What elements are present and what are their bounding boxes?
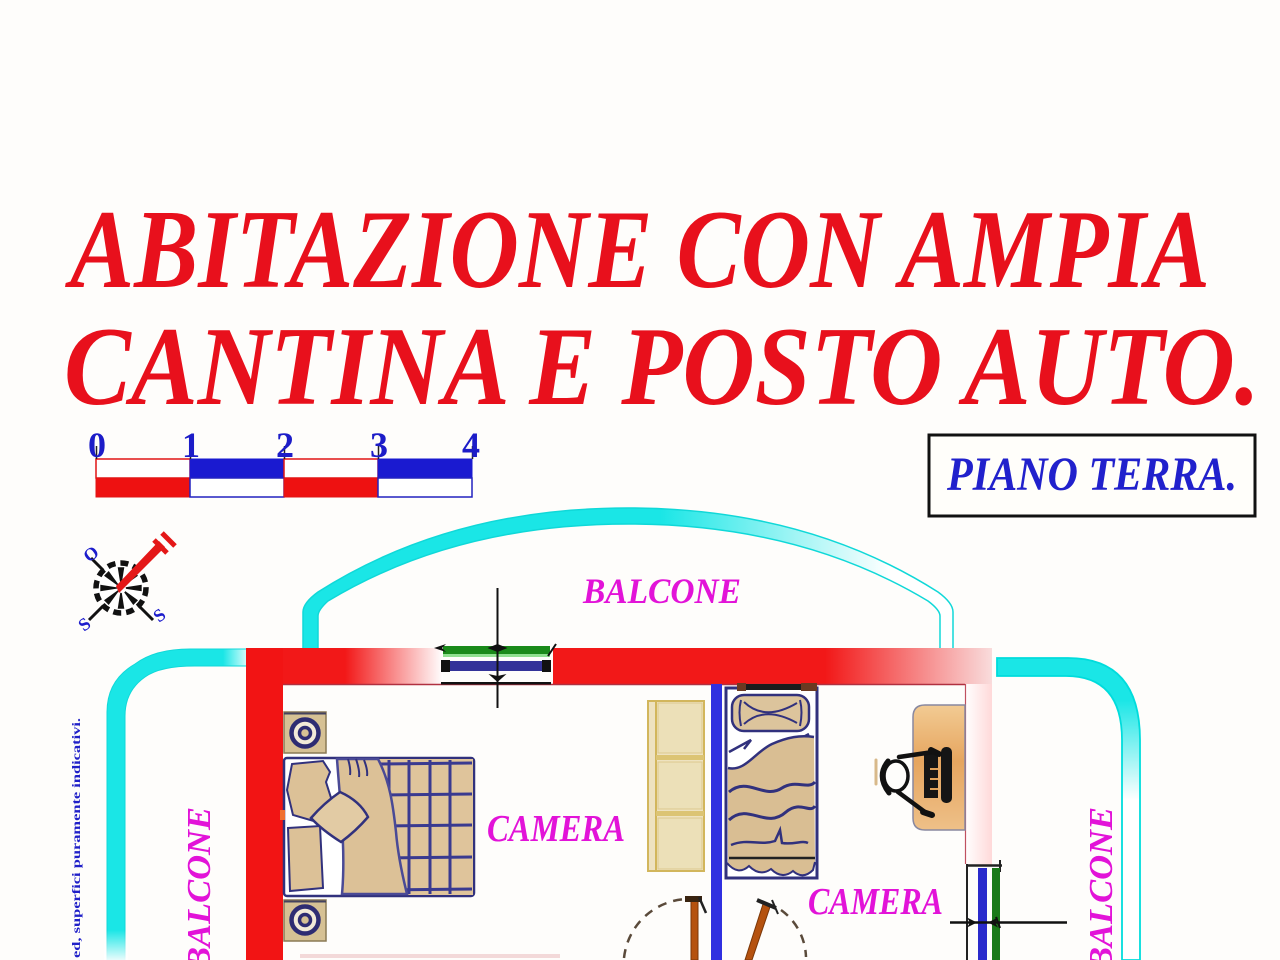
svg-text:1: 1: [182, 425, 200, 465]
svg-text:ed, superfici puramente indica: ed, superfici puramente indicativi.: [69, 718, 83, 958]
svg-text:2: 2: [276, 425, 294, 465]
svg-text:4: 4: [462, 425, 480, 465]
svg-text:ABITAZIONE CON AMPIA: ABITAZIONE CON AMPIA: [65, 188, 1210, 312]
svg-text:BALCONE: BALCONE: [181, 807, 218, 960]
svg-text:PIANO TERRA.: PIANO TERRA.: [946, 448, 1237, 501]
svg-text:BALCONE: BALCONE: [582, 571, 741, 611]
svg-text:CAMERA: CAMERA: [808, 881, 943, 923]
svg-text:0: 0: [88, 425, 106, 465]
svg-text:BALCONE: BALCONE: [1083, 807, 1120, 960]
svg-text:CANTINA E POSTO AUTO.: CANTINA E POSTO AUTO.: [64, 305, 1260, 429]
svg-text:3: 3: [370, 425, 388, 465]
svg-text:CAMERA: CAMERA: [487, 808, 625, 850]
